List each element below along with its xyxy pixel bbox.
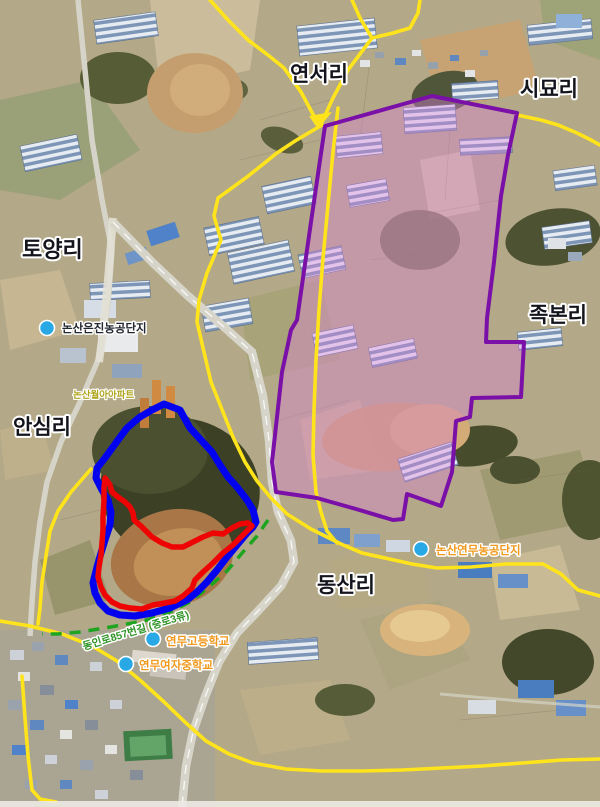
poi-label-nonsan-yeonmu: 논산연무농공단지 [436, 543, 521, 557]
region-label-simyori: 시묘리 [520, 78, 578, 101]
poi-label-nonsan-eunjin: 논산은진농공단지 [62, 321, 147, 335]
poi-label-yeonmu-high: 연무고등학교 [166, 634, 230, 648]
image-bottom-edge [0, 801, 600, 807]
satellite-map[interactable]: 연서리 시묘리 토양리 안심리 족본리 동산리 논산은진농공단지 논산연무농공단… [0, 0, 600, 807]
region-label-yeonseori: 연서리 [290, 63, 348, 86]
poi-marker-nonsan-eunjin[interactable] [40, 321, 55, 336]
poi-marker-nonsan-yeonmu[interactable] [414, 542, 429, 557]
region-label-jukbonri: 족본리 [529, 304, 587, 327]
region-label-dongsanri: 동산리 [317, 574, 375, 597]
apartment-label: 논산월아아파트 [73, 389, 134, 401]
region-label-ansimri: 안심리 [13, 416, 71, 439]
region-label-toyangri: 토양리 [22, 237, 83, 262]
poi-label-yeonmu-girls-middle: 연무여자중학교 [139, 658, 213, 672]
poi-marker-yeonmu-girls-middle[interactable] [119, 657, 134, 672]
poi-marker-yeonmu-high[interactable] [146, 632, 161, 647]
